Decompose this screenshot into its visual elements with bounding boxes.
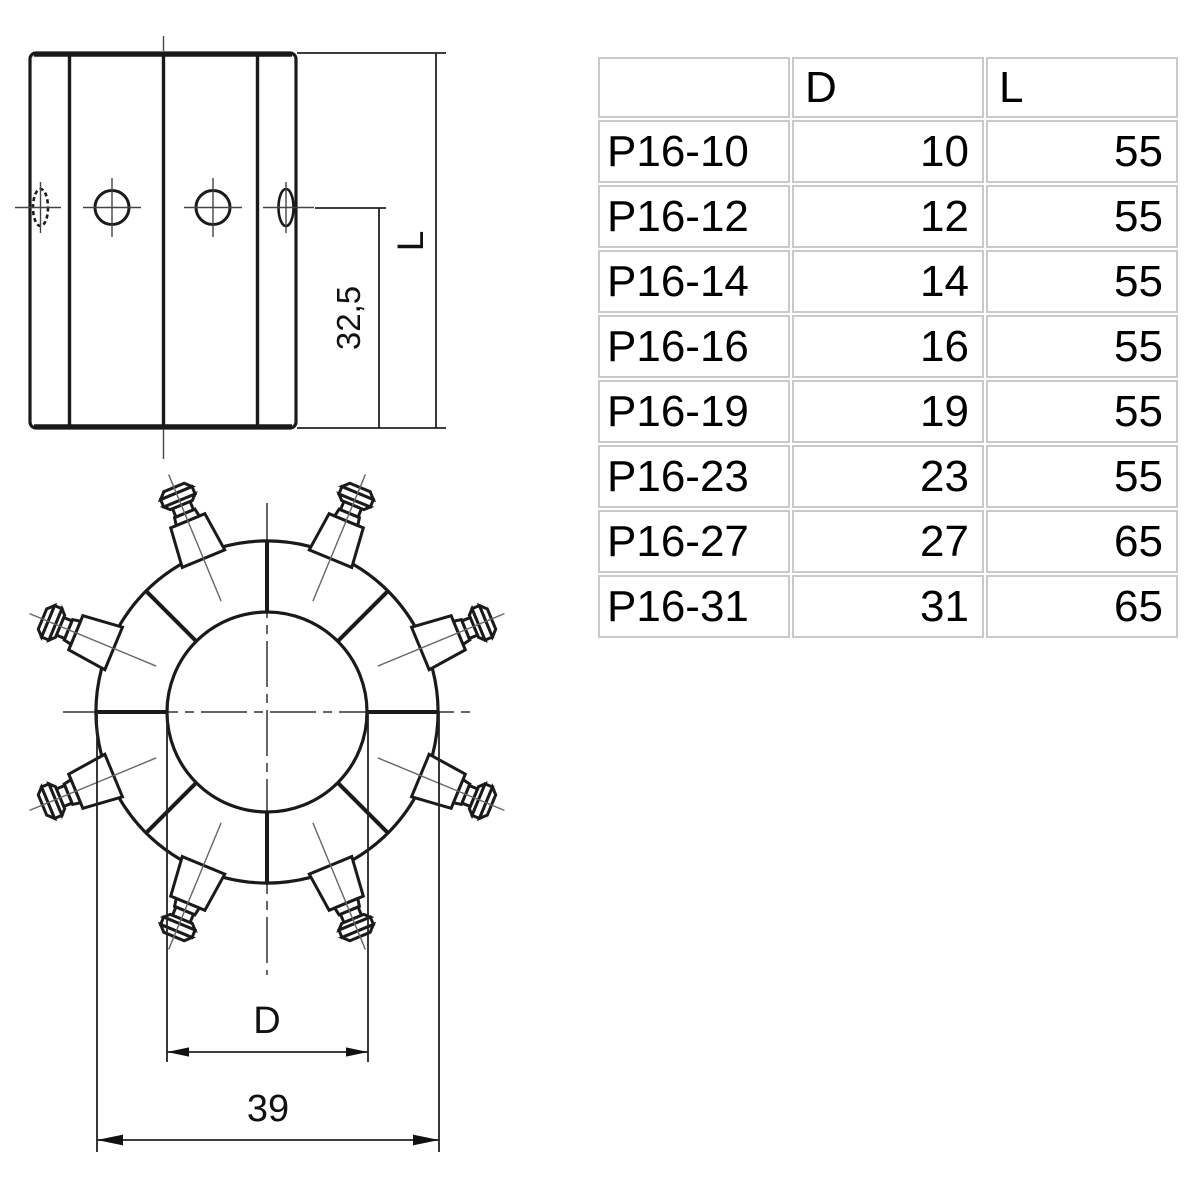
value-D: 19 — [792, 380, 984, 443]
screw — [21, 592, 165, 687]
table-row: P16-23 23 55 — [598, 445, 1178, 508]
value-L: 55 — [986, 120, 1178, 183]
table-row: P16-12 12 55 — [598, 185, 1178, 248]
value-L: 55 — [986, 315, 1178, 378]
screw — [147, 814, 242, 958]
header-cell-L: L — [986, 57, 1178, 118]
arrowhead — [346, 1047, 368, 1056]
value-D: 16 — [792, 315, 984, 378]
screw — [21, 737, 165, 832]
value-L: 55 — [986, 445, 1178, 508]
spec-table: D L P16-10 10 55 P16-12 12 55 P16-14 14 … — [596, 55, 1180, 640]
part-number: P16-14 — [598, 250, 790, 313]
dim-label-32-5: 32,5 — [330, 286, 367, 350]
screw — [369, 737, 513, 832]
value-L: 65 — [986, 575, 1178, 638]
table-row: P16-19 19 55 — [598, 380, 1178, 443]
arrowhead — [167, 1047, 189, 1056]
dim-label-D: D — [253, 1000, 280, 1042]
screw — [292, 466, 387, 610]
value-L: 55 — [986, 380, 1178, 443]
value-D: 31 — [792, 575, 984, 638]
part-number: P16-12 — [598, 185, 790, 248]
part-number: P16-31 — [598, 575, 790, 638]
table-row: P16-31 31 65 — [598, 575, 1178, 638]
part-number: P16-27 — [598, 510, 790, 573]
part-number: P16-16 — [598, 315, 790, 378]
part-number: P16-10 — [598, 120, 790, 183]
table-row: P16-10 10 55 — [598, 120, 1178, 183]
part-number: P16-23 — [598, 445, 790, 508]
front-view-dimensions — [97, 712, 439, 1152]
table-row: P16-14 14 55 — [598, 250, 1178, 313]
screw — [147, 466, 242, 610]
header-cell-D: D — [792, 57, 984, 118]
dim-label-39: 39 — [247, 1088, 289, 1130]
side-view — [15, 36, 314, 459]
screw — [369, 592, 513, 687]
screw — [292, 814, 387, 958]
arrowhead — [97, 1135, 123, 1146]
value-D: 27 — [792, 510, 984, 573]
value-L: 55 — [986, 250, 1178, 313]
value-D: 14 — [792, 250, 984, 313]
dim-label-L: L — [390, 231, 431, 252]
value-D: 12 — [792, 185, 984, 248]
value-D: 10 — [792, 120, 984, 183]
part-number: P16-19 — [598, 380, 790, 443]
table-header-row: D L — [598, 57, 1178, 118]
value-L: 65 — [986, 510, 1178, 573]
table-row: P16-16 16 55 — [598, 315, 1178, 378]
arrowhead — [413, 1135, 439, 1146]
value-L: 55 — [986, 185, 1178, 248]
table-row: P16-27 27 65 — [598, 510, 1178, 573]
value-D: 23 — [792, 445, 984, 508]
header-cell-name — [598, 57, 790, 118]
